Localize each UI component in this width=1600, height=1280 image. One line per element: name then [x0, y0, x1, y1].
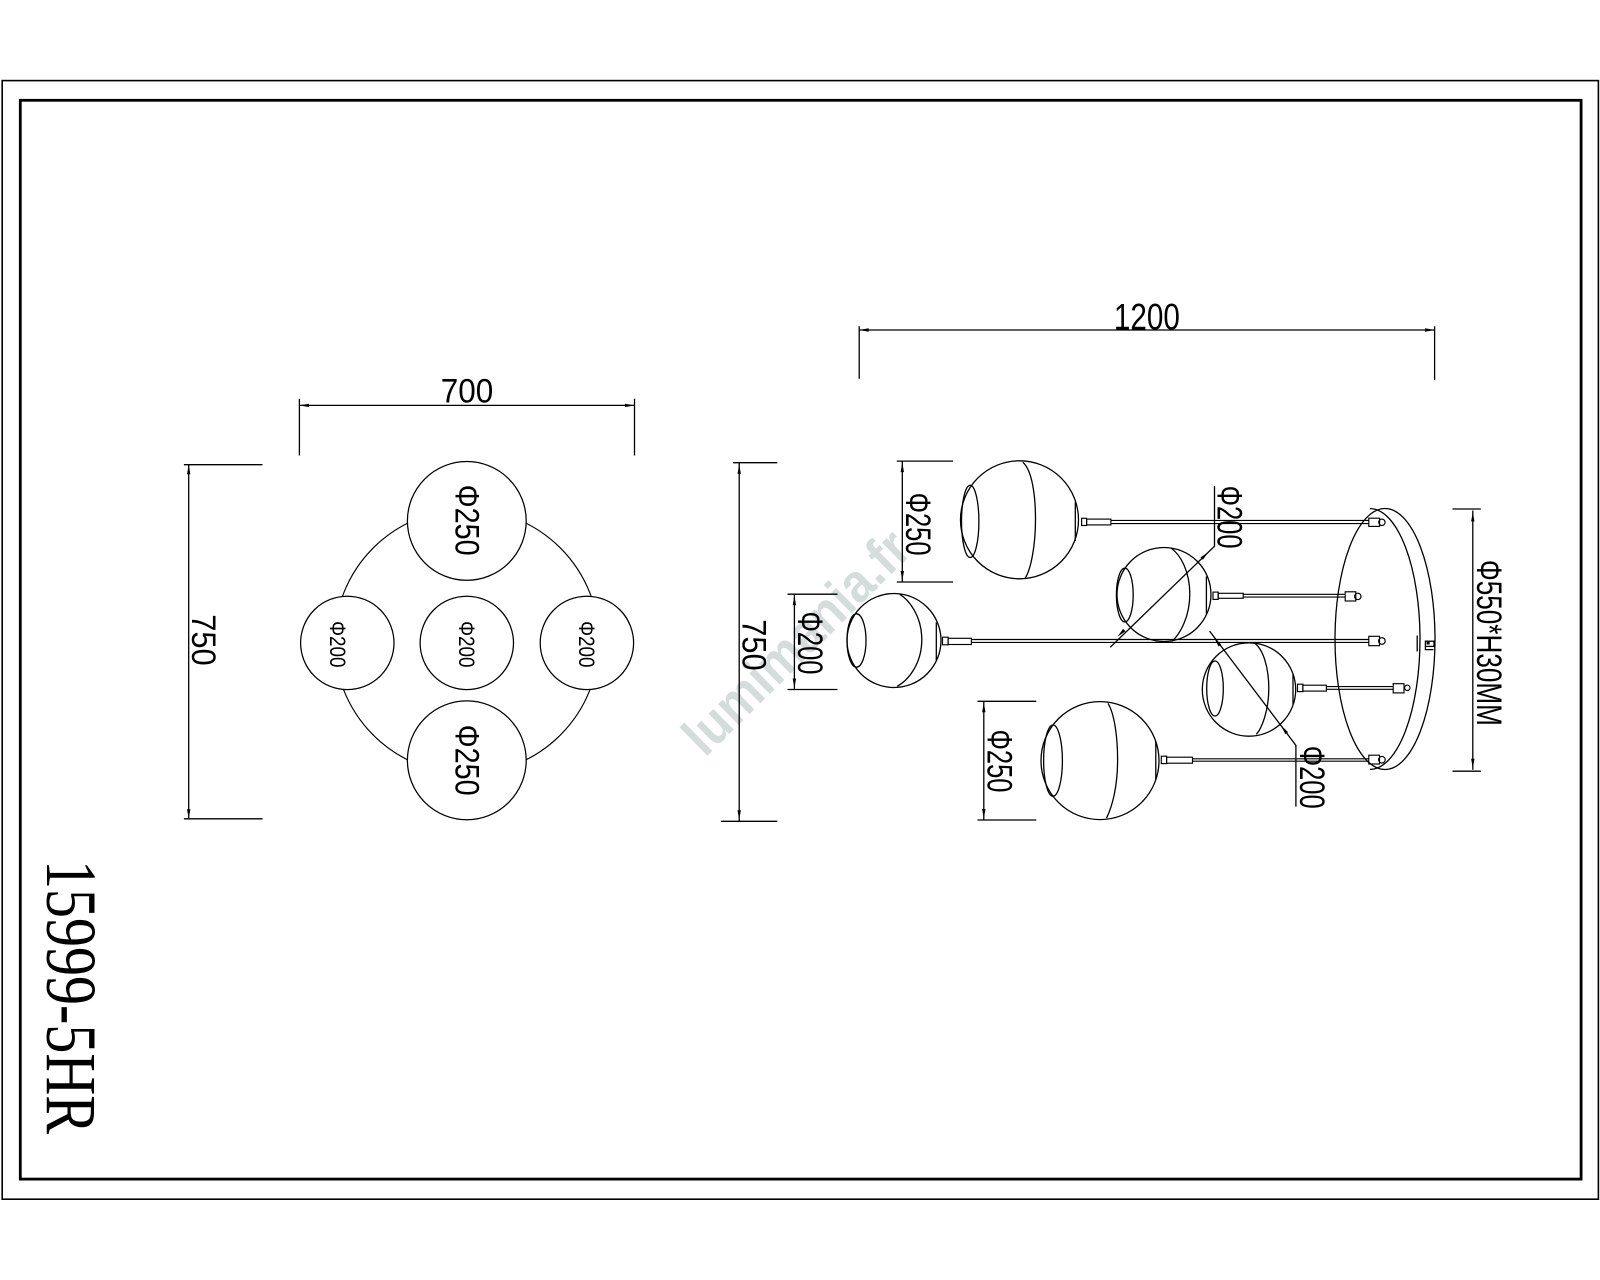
svg-text:Φ250: Φ250 — [898, 493, 938, 556]
svg-text:15999-5HR: 15999-5HR — [31, 860, 111, 1134]
svg-text:Φ250: Φ250 — [448, 485, 486, 556]
svg-text:Φ200: Φ200 — [574, 621, 599, 668]
svg-text:Φ250: Φ250 — [979, 730, 1019, 793]
svg-text:Φ250: Φ250 — [448, 725, 486, 796]
svg-text:Φ200: Φ200 — [325, 621, 350, 668]
svg-text:Φ200: Φ200 — [790, 612, 830, 675]
svg-text:750: 750 — [735, 619, 773, 671]
svg-text:Φ550*H30MM: Φ550*H30MM — [1469, 560, 1509, 726]
svg-text:750: 750 — [184, 614, 222, 666]
svg-text:Φ200: Φ200 — [1292, 746, 1332, 809]
svg-text:Φ200: Φ200 — [1210, 486, 1250, 549]
svg-text:Φ200: Φ200 — [454, 621, 479, 668]
svg-text:1200: 1200 — [1114, 297, 1180, 338]
svg-text:700: 700 — [441, 373, 494, 411]
